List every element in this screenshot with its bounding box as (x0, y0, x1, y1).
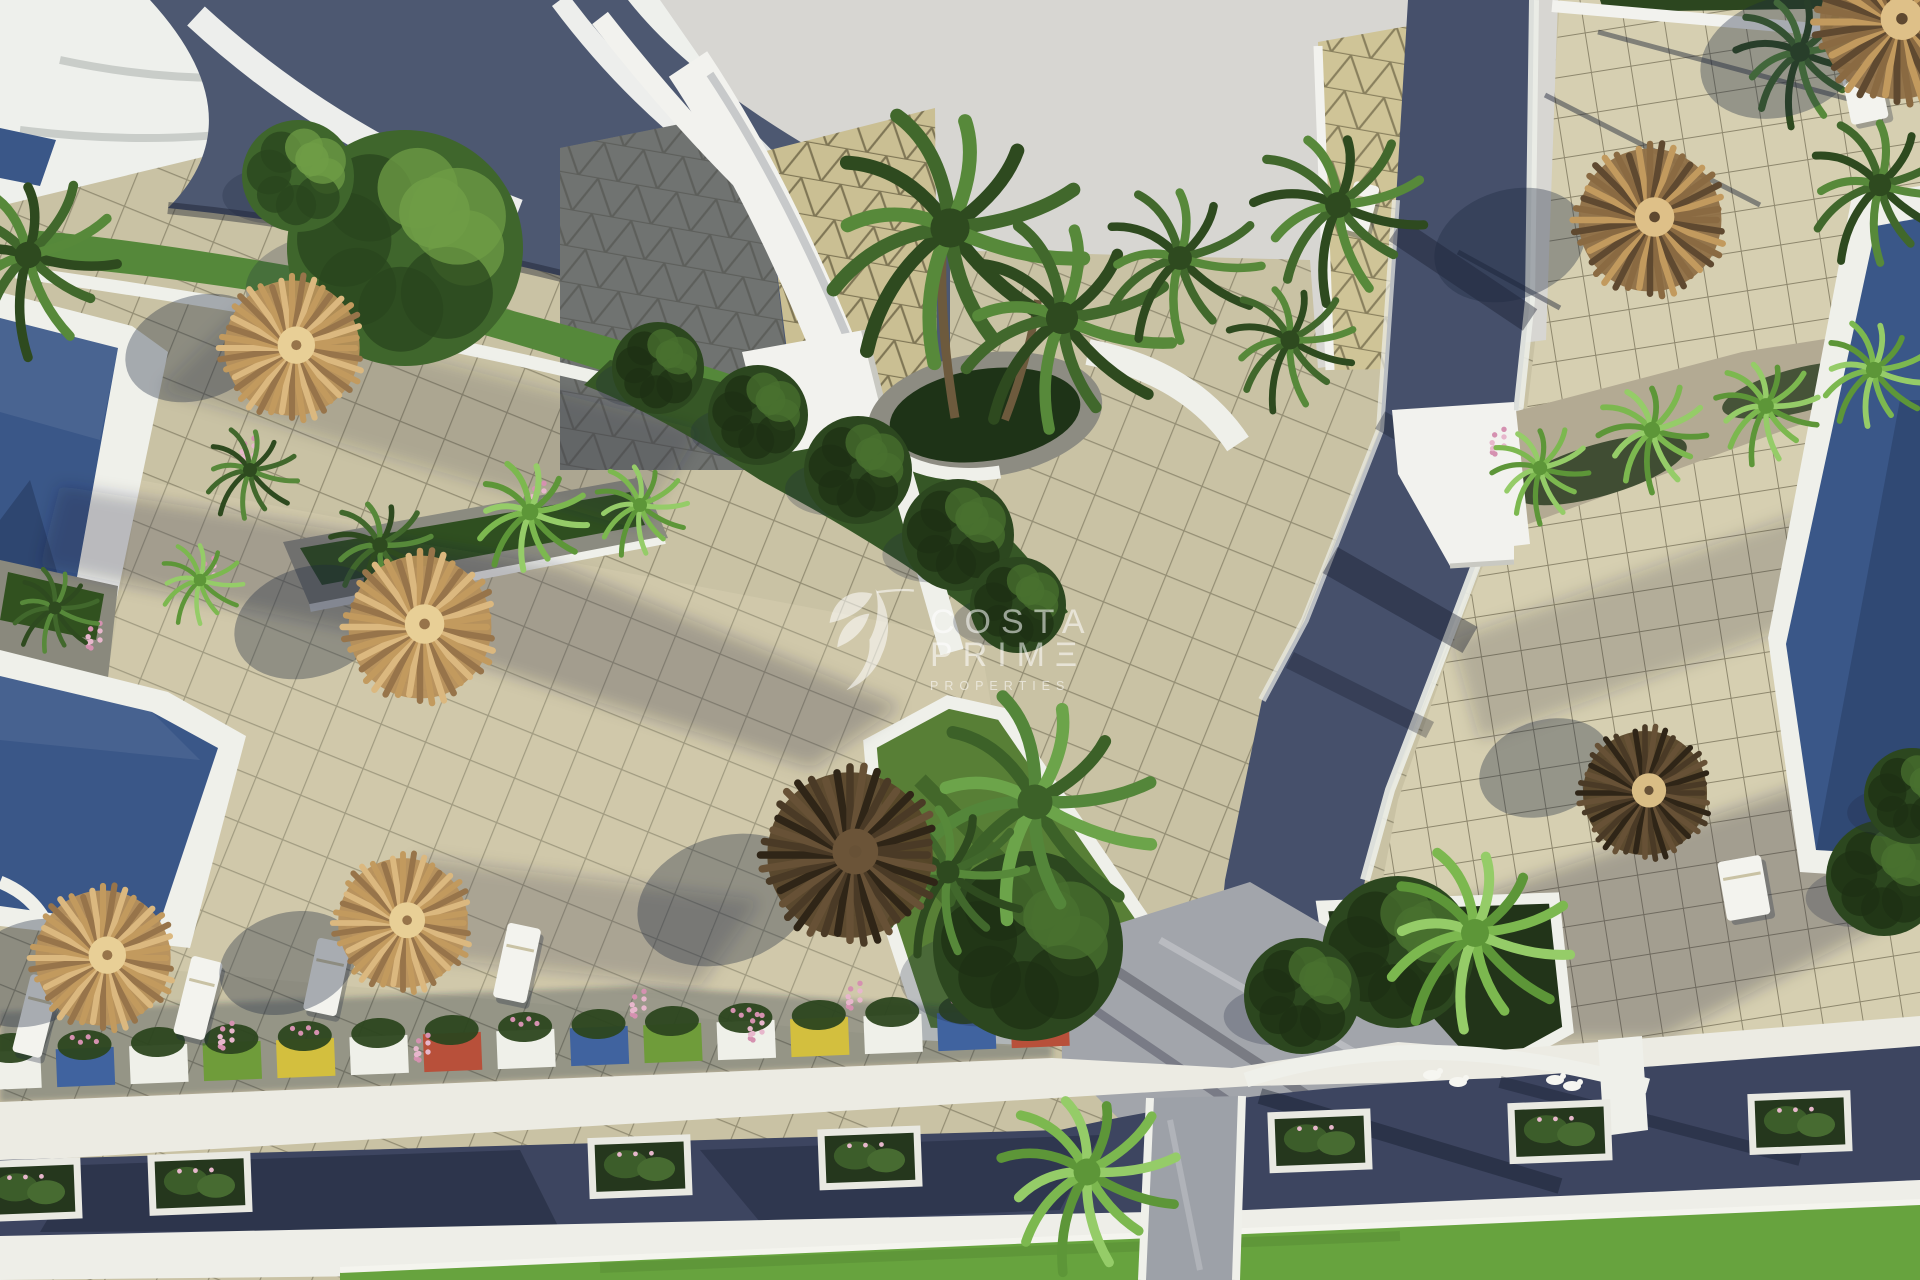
planter-box (422, 1014, 482, 1072)
planter-box (642, 1005, 702, 1063)
street-planter (1751, 1094, 1849, 1152)
planter-box (275, 1020, 335, 1078)
street-planter (1271, 1112, 1369, 1170)
planter-box (569, 1008, 629, 1066)
planter-box (349, 1017, 409, 1075)
aerial-resort-render: COSTA PRIMΞ PROPERTIES (0, 0, 1920, 1280)
street-planter (821, 1129, 919, 1187)
street-planter (0, 1161, 79, 1219)
planter-box (55, 1029, 115, 1087)
street-planter (591, 1138, 689, 1196)
street-planter (1511, 1103, 1609, 1161)
render-scene (0, 0, 1920, 1280)
street-planter (151, 1155, 249, 1213)
planter-box (789, 999, 849, 1057)
planter-box (496, 1011, 556, 1069)
planter-box (716, 1002, 776, 1060)
path-vertical (1142, 1096, 1242, 1280)
